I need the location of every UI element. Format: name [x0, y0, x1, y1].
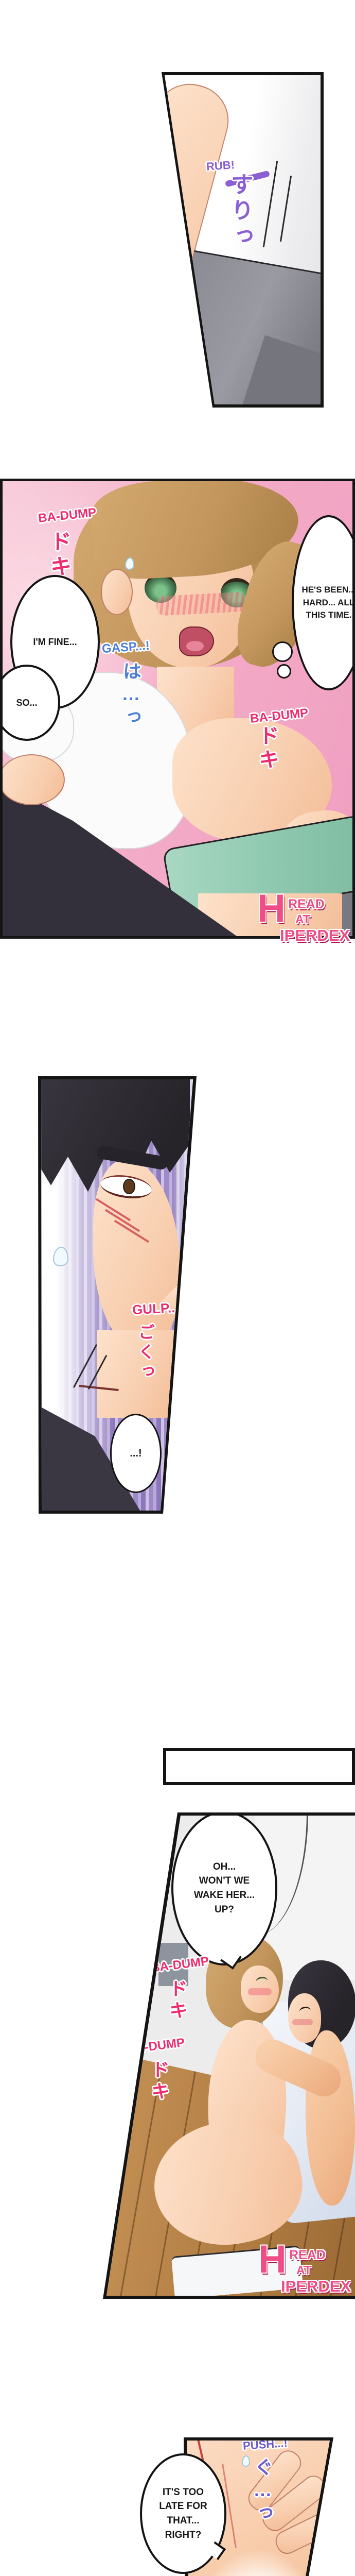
sfx-gulp-jp: ごくっ: [137, 1324, 154, 1393]
watermark-read: READ: [289, 2249, 326, 2261]
sfx-gasp-jp: は…っ: [121, 662, 140, 728]
sfx-push-jp: ぐ…っ: [253, 2458, 272, 2527]
bubble-dots-text: ...!: [130, 1446, 141, 1461]
sfx-badump-1-jp: ドキ: [168, 1979, 186, 2028]
watermark-read: READ: [288, 899, 325, 910]
watermark-iperdex: IPERDEX: [281, 2279, 351, 2294]
panel-strip: [163, 1748, 355, 1785]
bubble-late-line: RIGHT?: [159, 2528, 207, 2543]
bubble-wake-line: WAKE HER...: [194, 1888, 255, 1903]
bubble-fine-text: I'M FINE...: [33, 635, 77, 649]
bubble-he-line: HE'S BEEN...: [301, 584, 355, 597]
bubble-tail-circle: [272, 641, 293, 662]
watermark-h-logo: H: [257, 891, 282, 926]
sweat-drop: [125, 557, 134, 570]
man-iris: [123, 1179, 135, 1194]
comic-page: RUB! すりっ BA-DUMP ドキ HE'S BEEN... HARD.: [0, 0, 355, 2576]
sfx-rub: RUB!: [206, 159, 235, 173]
sfx-badump-2-jp: ドキ: [150, 2060, 168, 2105]
panel-3: GULP... ごくっ ...!: [35, 1074, 199, 1516]
watermark-iperdex: IPERDEX: [280, 928, 350, 943]
girl-ear: [101, 569, 133, 615]
panel-2: BA-DUMP ドキ HE'S BEEN... HARD... ALL THIS…: [0, 479, 355, 939]
bubble-wake-line: WON'T WE: [194, 1874, 255, 1888]
sfx-gasp: GASP...!: [101, 640, 150, 655]
girl-tongue: [186, 641, 204, 651]
watermark-at: AT: [296, 2265, 311, 2276]
watermark: H READ AT IPERDEX .COM: [258, 2244, 355, 2303]
bubble-he-line: THIS TIME.: [301, 609, 355, 622]
sweat-drop: [242, 2455, 250, 2467]
speech-bubble-wake: OH... WON'T WE WAKE HER... UP?: [171, 1811, 277, 1965]
bubble-wake-line: UP?: [194, 1903, 255, 1917]
bubble-late-line: LATE FOR: [159, 2499, 207, 2514]
sweat-drop: [53, 1247, 68, 1266]
speech-bubble-dots: ...!: [110, 1414, 162, 1493]
man-blush: [292, 2019, 313, 2025]
man-neck: [97, 1330, 174, 1418]
bubble-tail-circle: [277, 664, 291, 679]
bubble-he-line: HARD... ALL: [301, 597, 355, 609]
bubble-late-line: THAT...: [159, 2514, 207, 2528]
watermark-h-logo: H: [258, 2242, 283, 2277]
panel-4: OH... WON'T WE WAKE HER... UP? BA-DUMP ド…: [101, 1810, 355, 2301]
sfx-badump-bottom-jp: ドキ: [257, 725, 277, 779]
bubble-wake-line: OH...: [194, 1860, 255, 1874]
watermark: H READ AT IPERDEX .COM: [257, 893, 355, 953]
bubble-late-line: IT'S TOO: [159, 2485, 207, 2500]
man-face: [288, 1993, 321, 2043]
panel-1: RUB! すりっ: [159, 70, 326, 410]
sfx-rub-jp: すりっ: [228, 173, 251, 258]
fist-shape: [0, 754, 65, 805]
girl-blush: [248, 1988, 272, 1995]
watermark-at: AT: [295, 914, 310, 925]
bubble-so-text: SO...: [16, 696, 37, 709]
sfx-gulp: GULP...: [132, 1301, 179, 1317]
